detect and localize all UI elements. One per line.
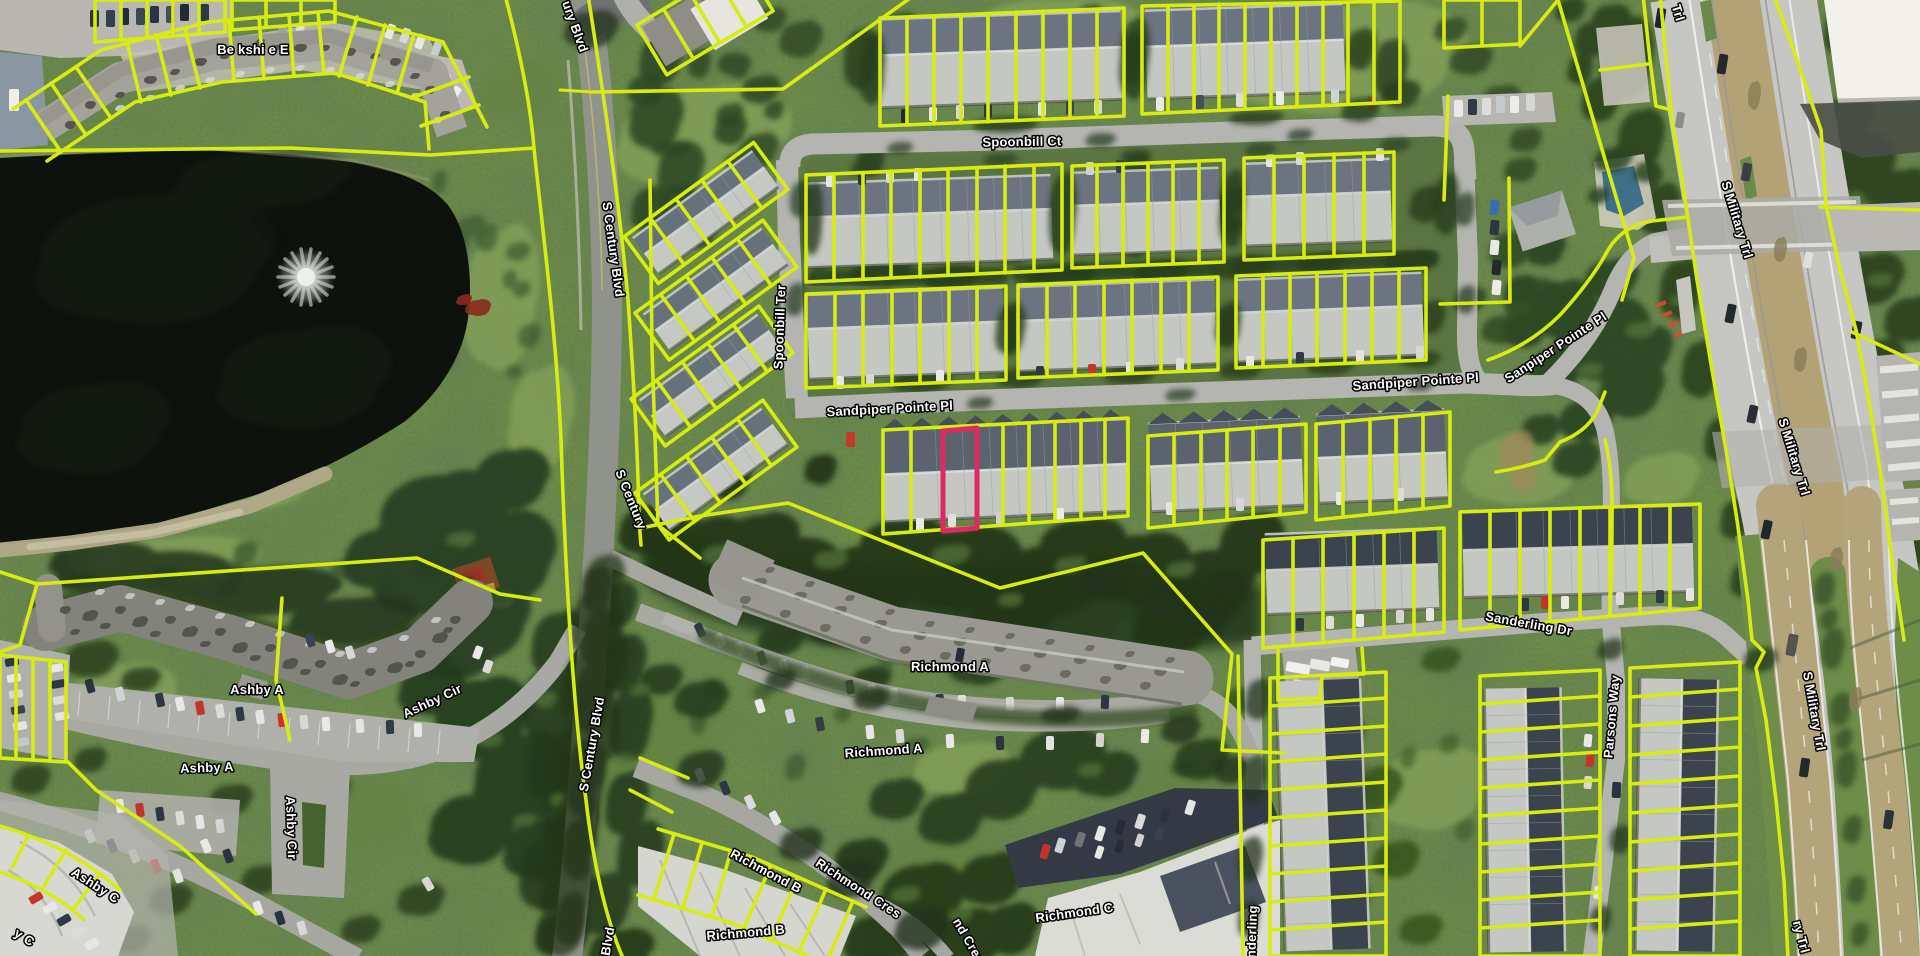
svg-text:Sanderling: Sanderling	[1243, 905, 1260, 956]
svg-text:Be kshi e E: Be kshi e E	[217, 42, 289, 57]
svg-text:Ashby Cir: Ashby Cir	[283, 796, 300, 860]
svg-text:Ashby A: Ashby A	[180, 759, 235, 776]
svg-text:Richmond A: Richmond A	[911, 659, 989, 674]
svg-text:Ashby A: Ashby A	[230, 682, 284, 697]
svg-text:Spoonbill Ct: Spoonbill Ct	[982, 133, 1062, 149]
svg-text:Spoonbill Ter: Spoonbill Ter	[771, 284, 789, 369]
